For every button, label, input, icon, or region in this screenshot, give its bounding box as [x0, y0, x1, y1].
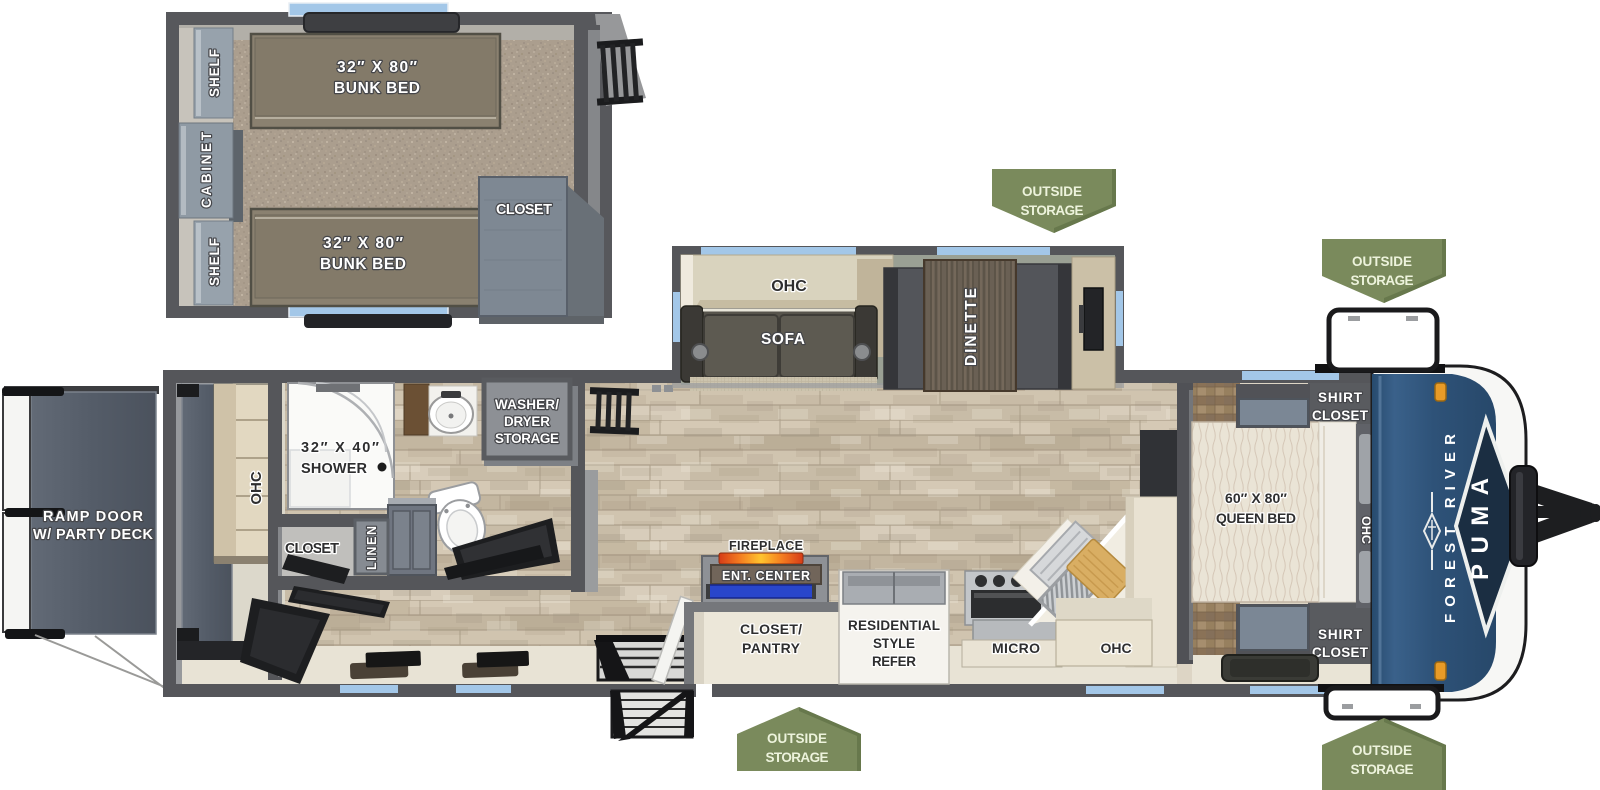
- svg-text:STORAGE: STORAGE: [1021, 203, 1084, 218]
- svg-text:SHELF: SHELF: [207, 49, 222, 97]
- svg-text:OHC: OHC: [248, 471, 265, 505]
- svg-text:WASHER/: WASHER/: [495, 397, 559, 412]
- svg-text:60″ X 80″: 60″ X 80″: [1225, 490, 1287, 506]
- svg-text:RAMP DOOR: RAMP DOOR: [43, 509, 144, 525]
- svg-text:QUEEN BED: QUEEN BED: [1216, 510, 1296, 526]
- svg-text:OUTSIDE: OUTSIDE: [1022, 184, 1082, 199]
- svg-text:CLOSET: CLOSET: [285, 541, 339, 557]
- svg-text:ENT. CENTER: ENT. CENTER: [722, 569, 810, 583]
- svg-text:32″ X 40″: 32″ X 40″: [301, 440, 379, 456]
- svg-text:STORAGE: STORAGE: [1351, 762, 1414, 777]
- svg-text:STORAGE: STORAGE: [495, 431, 559, 446]
- svg-text:OHC: OHC: [771, 278, 807, 295]
- svg-text:BUNK BED: BUNK BED: [334, 80, 420, 97]
- svg-text:STYLE: STYLE: [873, 636, 915, 651]
- svg-text:PANTRY: PANTRY: [742, 640, 801, 656]
- svg-text:OUTSIDE: OUTSIDE: [767, 731, 827, 746]
- svg-text:SHELF: SHELF: [207, 238, 222, 286]
- svg-text:DRYER: DRYER: [504, 414, 550, 429]
- svg-text:RESIDENTIAL: RESIDENTIAL: [848, 618, 940, 633]
- svg-text:SHIRT: SHIRT: [1318, 627, 1363, 642]
- svg-text:FOREST RIVER: FOREST RIVER: [1442, 433, 1459, 623]
- svg-text:STORAGE: STORAGE: [766, 750, 829, 765]
- svg-text:OUTSIDE: OUTSIDE: [1352, 743, 1412, 758]
- svg-text:LINEN: LINEN: [365, 526, 379, 570]
- svg-text:32″ X 80″: 32″ X 80″: [323, 235, 404, 252]
- svg-text:MICRO: MICRO: [992, 640, 1040, 656]
- svg-text:32″ X 80″: 32″ X 80″: [337, 59, 418, 76]
- svg-text:FIREPLACE: FIREPLACE: [729, 539, 803, 553]
- svg-text:CLOSET: CLOSET: [1312, 408, 1369, 423]
- svg-text:SOFA: SOFA: [761, 331, 805, 348]
- svg-text:REFER: REFER: [872, 654, 916, 669]
- svg-text:CLOSET: CLOSET: [1312, 645, 1369, 660]
- svg-text:OUTSIDE: OUTSIDE: [1352, 254, 1412, 269]
- svg-text:OHC: OHC: [1100, 640, 1131, 656]
- svg-text:STORAGE: STORAGE: [1351, 273, 1414, 288]
- svg-text:SHOWER: SHOWER: [301, 461, 368, 477]
- svg-text:CLOSET: CLOSET: [496, 202, 552, 218]
- svg-text:W/ PARTY DECK: W/ PARTY DECK: [33, 527, 154, 543]
- svg-text:CLOSET/: CLOSET/: [740, 621, 802, 637]
- svg-text:SHIRT: SHIRT: [1318, 390, 1363, 405]
- svg-text:BUNK BED: BUNK BED: [320, 256, 406, 273]
